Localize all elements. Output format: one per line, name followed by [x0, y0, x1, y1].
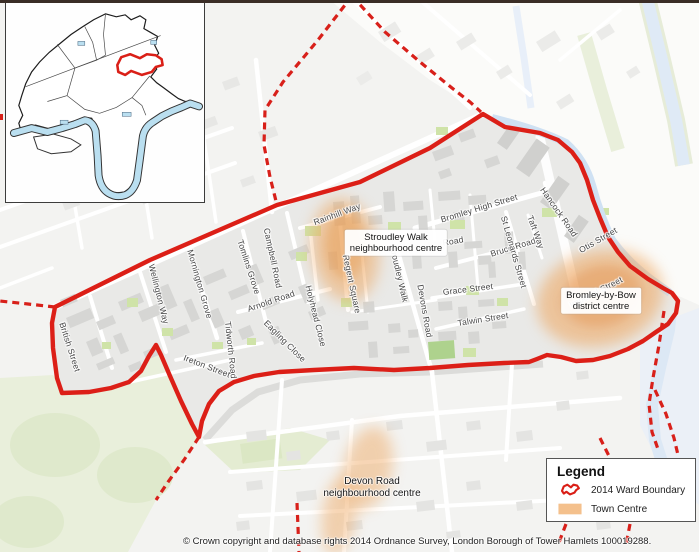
ward-boundary-icon — [557, 482, 583, 498]
legend: Legend 2014 Ward Boundary Town Centre — [546, 458, 696, 522]
legend-item-ward-boundary: 2014 Ward Boundary — [557, 482, 695, 498]
town-centre-swatch — [557, 501, 583, 517]
legend-item-label: 2014 Ward Boundary — [591, 485, 685, 496]
top-border — [0, 0, 699, 3]
inset-highlighted-ward — [117, 54, 162, 75]
centre-label: Devon Roadneighbourhood centre — [323, 476, 420, 500]
inset-svg — [6, 3, 203, 201]
copyright-text: © Crown copyright and database rights 20… — [183, 536, 651, 547]
map-canvas: Rainhill WayBromley High StreetRoadBruce… — [0, 0, 699, 552]
legend-title: Legend — [557, 464, 695, 479]
centre-label: Bromley-by-Bowdistrict centre — [561, 288, 641, 314]
centre-label: Stroudley Walkneighbourhood centre — [345, 230, 447, 256]
legend-item-label: Town Centre — [591, 504, 647, 515]
legend-item-town-centre: Town Centre — [557, 501, 695, 517]
boundary-edge-tick — [0, 114, 3, 120]
borough-inset-map — [5, 2, 205, 203]
